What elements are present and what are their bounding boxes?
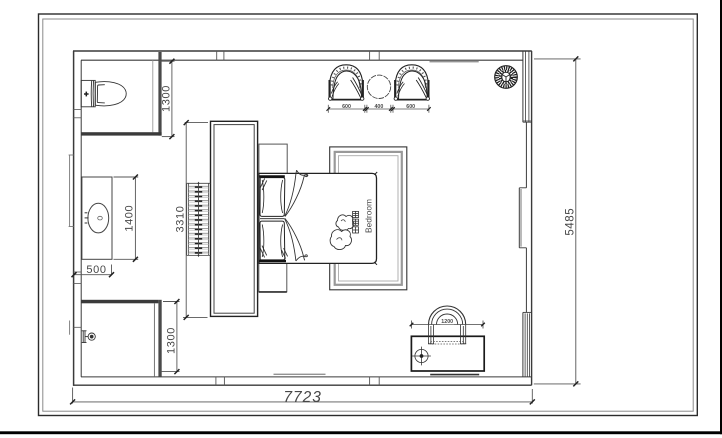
svg-text:600: 600 [342,104,351,110]
svg-text:1400: 1400 [124,205,136,232]
svg-text:Bedroom: Bedroom [363,199,373,233]
svg-text:3310: 3310 [175,206,187,233]
svg-text:600: 600 [406,104,415,110]
svg-text:5485: 5485 [564,208,576,236]
svg-text:1300: 1300 [161,85,173,112]
svg-text:7723: 7723 [283,389,321,406]
svg-text:400: 400 [374,104,383,110]
svg-text:1200: 1200 [441,319,453,325]
svg-text:500: 500 [86,264,106,276]
svg-text:1300: 1300 [166,327,178,354]
